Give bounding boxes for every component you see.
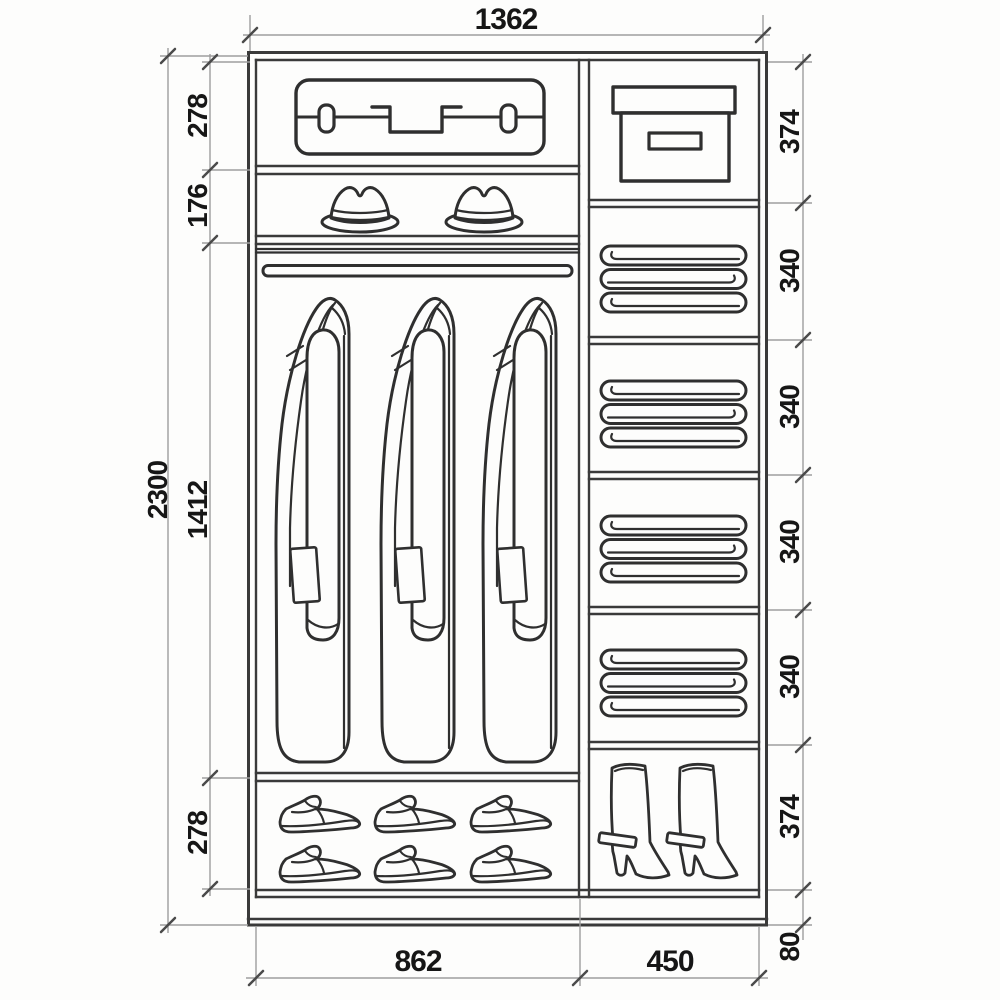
fedora-hat-icon (446, 188, 522, 232)
high-boot-icon (598, 764, 669, 878)
dim-height-total-label: 2300 (142, 460, 173, 519)
folded-linen-icon (601, 516, 746, 582)
dress-shoe-icon (375, 796, 455, 832)
dim-right-3-label: 340 (774, 520, 805, 564)
dim-bottom-right-label: 450 (646, 945, 693, 978)
dim-bottom-widths: 862 450 (246, 899, 768, 986)
folded-linen-icon (601, 381, 746, 447)
dim-width-total-label: 1362 (475, 3, 538, 36)
dress-shoe-icon (375, 846, 455, 882)
dim-top-width: 1362 (243, 3, 770, 51)
dim-left-0-label: 278 (182, 94, 213, 138)
fedora-hat-icon (322, 188, 398, 232)
hanging-rod (263, 266, 572, 277)
coat-icon (276, 298, 349, 762)
coat-icon (483, 298, 556, 762)
dim-right-5-label: 374 (774, 794, 805, 839)
dim-left-sections: 278 176 1412 278 (182, 54, 250, 896)
folded-linen-icon (601, 650, 746, 716)
dim-right-1-label: 340 (774, 249, 805, 293)
dim-right-4-label: 340 (774, 655, 805, 699)
high-boot-icon (666, 764, 737, 878)
dim-left-1-label: 176 (182, 184, 213, 228)
dress-shoe-icon (280, 796, 360, 832)
coat-icon (381, 298, 454, 762)
dim-right-sections: 374 340 340 340 340 374 80 (768, 54, 812, 962)
storage-box-icon (613, 87, 735, 181)
dim-left-2-label: 1412 (182, 480, 213, 539)
center-divider (579, 60, 589, 897)
suitcase-icon (296, 80, 544, 154)
dress-shoe-icon (471, 846, 551, 882)
wardrobe-dimension-diagram: 1362 2300 278 176 1412 278 (0, 0, 1000, 1000)
dim-right-2-label: 340 (774, 385, 805, 429)
dim-base-label: 80 (774, 932, 805, 962)
dim-bottom-left-label: 862 (394, 945, 441, 978)
dim-right-0-label: 374 (774, 109, 805, 154)
dim-left-3-label: 278 (182, 811, 213, 855)
folded-linen-icon (601, 246, 746, 312)
dress-shoe-icon (280, 846, 360, 882)
dress-shoe-icon (471, 796, 551, 832)
